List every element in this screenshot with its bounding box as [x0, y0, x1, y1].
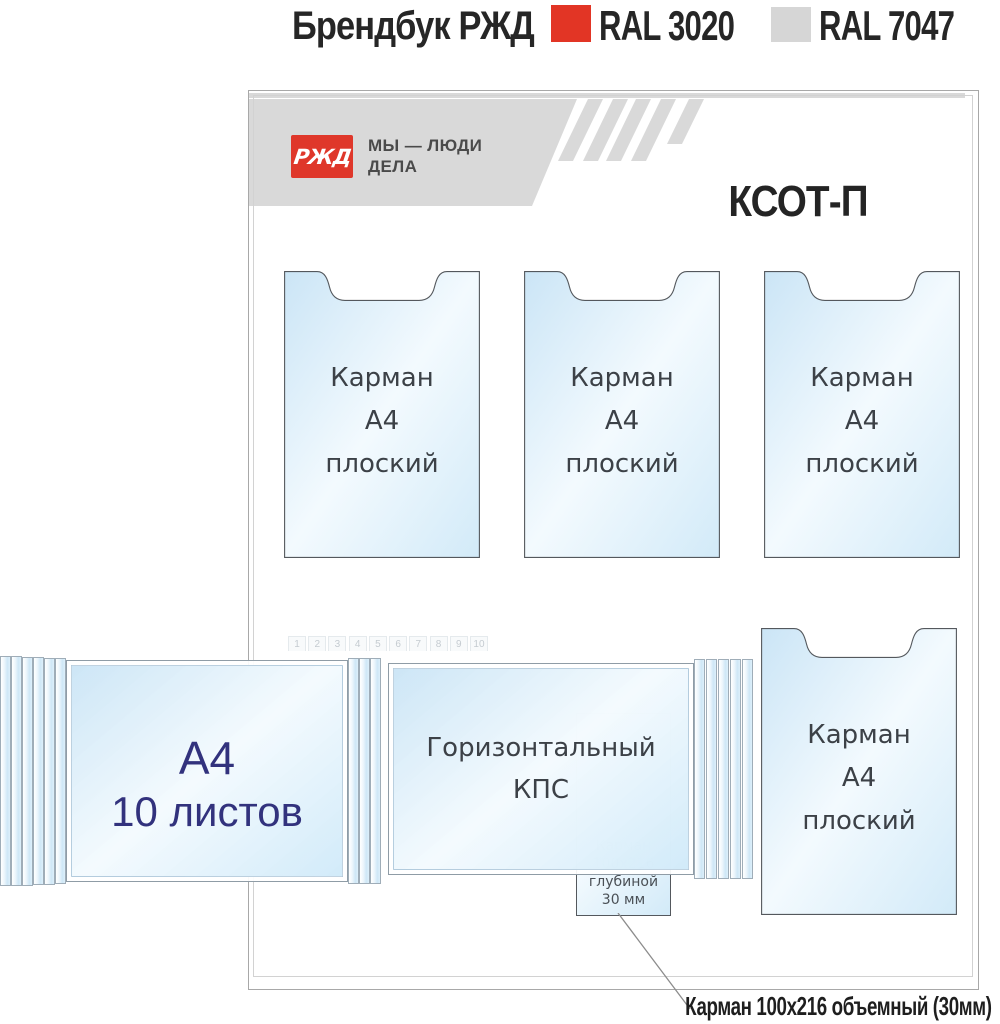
flip-tab: 4 — [349, 636, 367, 651]
flip-tab: 9 — [450, 636, 468, 651]
flipbook-sheet-edge — [718, 659, 729, 879]
ral-7047-label: RAL 7047 — [819, 2, 954, 50]
flip-tab: 3 — [328, 636, 346, 651]
rzd-logo-text: РЖД — [292, 145, 352, 169]
stand-title: КСОТ-П — [710, 177, 886, 227]
callout-label: Карман 100x216 объемный (30мм) — [686, 991, 992, 1022]
brandbook-title: Брендбук РЖД — [292, 4, 534, 49]
ral-7047-swatch — [771, 7, 811, 42]
slogan-line1: МЫ — ЛЮДИ — [368, 135, 482, 156]
flip-tab: 1 — [288, 636, 306, 651]
flip-tab: 5 — [369, 636, 387, 651]
flipbook-front-sheet: А4 10 листов — [66, 660, 348, 882]
flip-tab: 6 — [389, 636, 407, 651]
flipbook-sheet-edge — [44, 658, 55, 885]
rzd-logo-icon: РЖД — [291, 135, 353, 178]
pocket-label: Карман А4 плоский — [764, 271, 960, 558]
pocket-label: Карман А4 плоский — [284, 271, 480, 558]
flipbook-sheet-edge — [33, 657, 44, 885]
flipbook-sheet-edge — [730, 659, 741, 879]
flipbook-sheet-edge — [370, 658, 381, 884]
pocket-label: Карман А4 плоский — [524, 271, 720, 558]
flip-tab: 2 — [308, 636, 326, 651]
flipbook-sheet-edge — [55, 658, 66, 884]
flipbook-front-sheet: Горизонтальный КПС — [388, 663, 694, 875]
flipbook-sheet-edge — [694, 659, 705, 879]
pocket-label: Карман А4 плоский — [761, 628, 957, 915]
ral-3020-label: RAL 3020 — [599, 2, 734, 50]
mockup-canvas: Брендбук РЖД RAL 3020 RAL 7047 РЖД МЫ — … — [0, 0, 1000, 1024]
flip-tab: 8 — [430, 636, 448, 651]
header-stripes — [558, 99, 704, 161]
ral-3020-swatch — [551, 5, 591, 42]
slogan: МЫ — ЛЮДИ ДЕЛА — [368, 135, 482, 177]
pocket-a4-flat-2: Карман А4 плоский — [524, 271, 720, 558]
flipbook-a4-label: А4 10 листов — [111, 703, 303, 839]
flipbook-sheet-edge — [11, 656, 22, 886]
pocket-a4-flat-1: Карман А4 плоский — [284, 271, 480, 558]
flip-tab: 10 — [470, 636, 488, 651]
flip-tabs: 1 2 3 4 5 6 7 8 9 10 — [288, 636, 488, 651]
flipbook-a4-face: А4 10 листов — [71, 665, 343, 877]
pocket-a4-flat-3: Карман А4 плоский — [764, 271, 960, 558]
pocket-a4-flat-4: Карман А4 плоский — [761, 628, 957, 915]
band-top-strip — [249, 93, 965, 98]
flipbook-sheet-edge — [359, 658, 370, 884]
flip-tab: 7 — [409, 636, 427, 651]
slogan-line2: ДЕЛА — [368, 156, 482, 177]
flipbook-sheet-edge — [348, 658, 359, 884]
flipbook-kps-face: Горизонтальный КПС — [393, 668, 689, 870]
flipbook-sheet-edge — [706, 659, 717, 879]
flipbook-kps-label: Горизонтальный КПС — [426, 727, 655, 811]
flipbook-sheet-edge — [742, 659, 753, 879]
flipbook-sheet-edge — [0, 656, 11, 886]
flipbook-sheet-edge — [22, 657, 33, 886]
